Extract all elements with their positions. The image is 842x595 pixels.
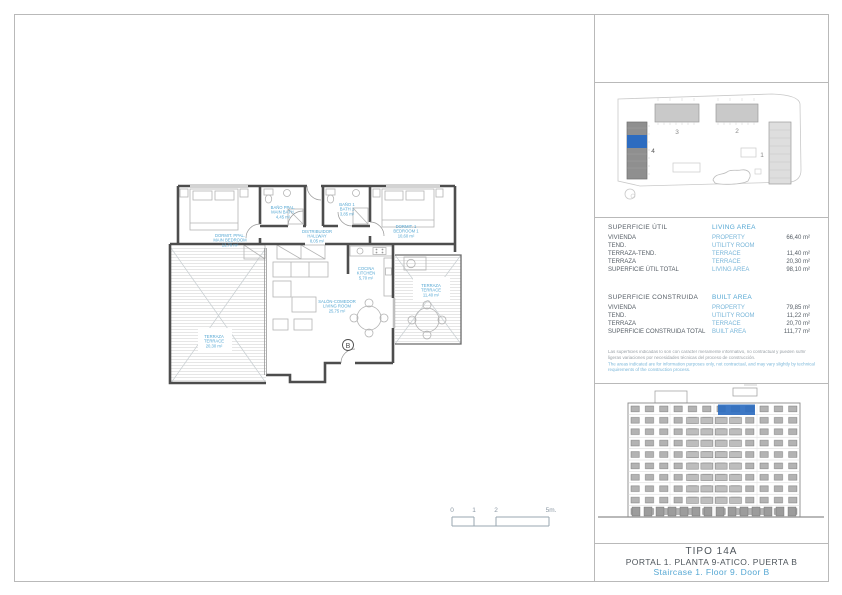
room-label-living-room: SALÓN-COMEDORLIVING ROOM25,75 m²	[318, 300, 356, 314]
building-4	[627, 122, 647, 179]
table-row: TEND.UTILITY ROOM	[608, 242, 810, 250]
building-4-label: 4	[651, 148, 655, 155]
building-2-label: 2	[735, 128, 739, 135]
table-row: VIVIENDAPROPERTY66,40 m²	[608, 234, 810, 242]
door-b-marker: B	[343, 340, 354, 351]
terrace-right	[395, 255, 461, 344]
scale-label-0: 0	[450, 507, 454, 514]
sheet-title: TIPO 14A	[595, 546, 828, 557]
built-header-es: SUPERFICIE CONSTRUIDA	[608, 294, 712, 301]
disclaimer-en: The areas indicated are for information …	[608, 362, 817, 373]
door-b-label: B	[346, 343, 351, 350]
table-row: SUPERFICIE ÚTIL TOTALLIVING AREA98,10 m²	[608, 266, 810, 274]
scale-label-5m: 5m.	[546, 507, 557, 514]
scale-label-1: 1	[472, 507, 476, 514]
building-4-highlight	[627, 135, 647, 148]
building-3-label: 3	[675, 129, 679, 136]
room-label-terrace-right: TERRAZATERRACE11,40 m²	[421, 284, 441, 298]
roof-box	[733, 388, 757, 396]
title-block: TIPO 14A PORTAL 1. PLANTA 9-ATICO. PUERT…	[595, 546, 828, 577]
sheet-subtitle-en: Staircase 1. Floor 9. Door B	[595, 567, 828, 577]
drawing-sheet: B DORMIT. PPAL.MAIN BEDROOM13,70 m² BAÑO…	[0, 0, 842, 595]
table-row: TERRAZA-TEND.TERRACE11,40 m²	[608, 250, 810, 258]
table-row: TERRAZATERRACE20,30 m²	[608, 258, 810, 266]
building-1	[769, 122, 791, 184]
table-row: VIVIENDAPROPERTY79,85 m²	[608, 304, 810, 312]
room-label-hallway: DISTRIBUIDORHALLWAY8,05 m²	[302, 230, 332, 244]
area-tables: SUPERFICIE ÚTIL LIVING AREA VIVIENDAPROP…	[608, 224, 810, 336]
table-row: TERRAZATERRACE20,70 m²	[608, 320, 810, 328]
room-label-terrace-left: TERRAZATERRACE20,30 m²	[204, 335, 224, 349]
room-label-main-bedroom: DORMIT. PPAL.MAIN BEDROOM13,70 m²	[213, 234, 246, 248]
built-header-en: BUILT AREA	[712, 294, 810, 301]
section-divider-elevation	[594, 543, 828, 544]
section-divider-siteplan	[594, 217, 828, 218]
disclaimer: Las superficies indicadas lo son con car…	[608, 350, 817, 373]
unit-highlight	[718, 405, 755, 416]
room-label-kitchen: COCINAKITCHEN5,70 m²	[357, 267, 375, 281]
disclaimer-es: Las superficies indicadas lo son con car…	[608, 350, 817, 361]
room-label-bedroom-1: DORMIT. 1BEDROOM 110,60 m²	[393, 225, 418, 239]
table-row: SUPERFICIE CONSTRUIDA TOTALBUILT AREA111…	[608, 328, 810, 336]
building-3	[655, 104, 699, 122]
site-plan: 1 2 3 4	[594, 82, 828, 217]
hob-burners	[376, 249, 384, 254]
area-table-useful: SUPERFICIE ÚTIL LIVING AREA VIVIENDAPROP…	[608, 224, 810, 274]
sheet-subtitle-es: PORTAL 1. PLANTA 9-ATICO. PUERTA B	[595, 557, 828, 567]
building-elevation	[594, 383, 828, 543]
scale-label-2: 2	[494, 507, 498, 514]
building-1-label: 1	[760, 152, 764, 159]
terrace-left	[171, 248, 266, 383]
room-label-main-bath: BAÑO PPAL.MAIN BATH.4,45 m²	[271, 206, 296, 220]
scale-bar: 0 1 2 5m.	[445, 503, 565, 533]
area-table-built: SUPERFICIE CONSTRUIDA BUILT AREA VIVIEND…	[608, 294, 810, 336]
roof-box	[655, 391, 687, 403]
useful-header-es: SUPERFICIE ÚTIL	[608, 224, 712, 231]
building-2	[716, 104, 758, 122]
room-label-bath-1: BAÑO 1BATH 13,85 m²	[339, 203, 354, 217]
table-row: TEND.UTILITY ROOM11,22 m²	[608, 312, 810, 320]
useful-header-en: LIVING AREA	[712, 224, 810, 231]
